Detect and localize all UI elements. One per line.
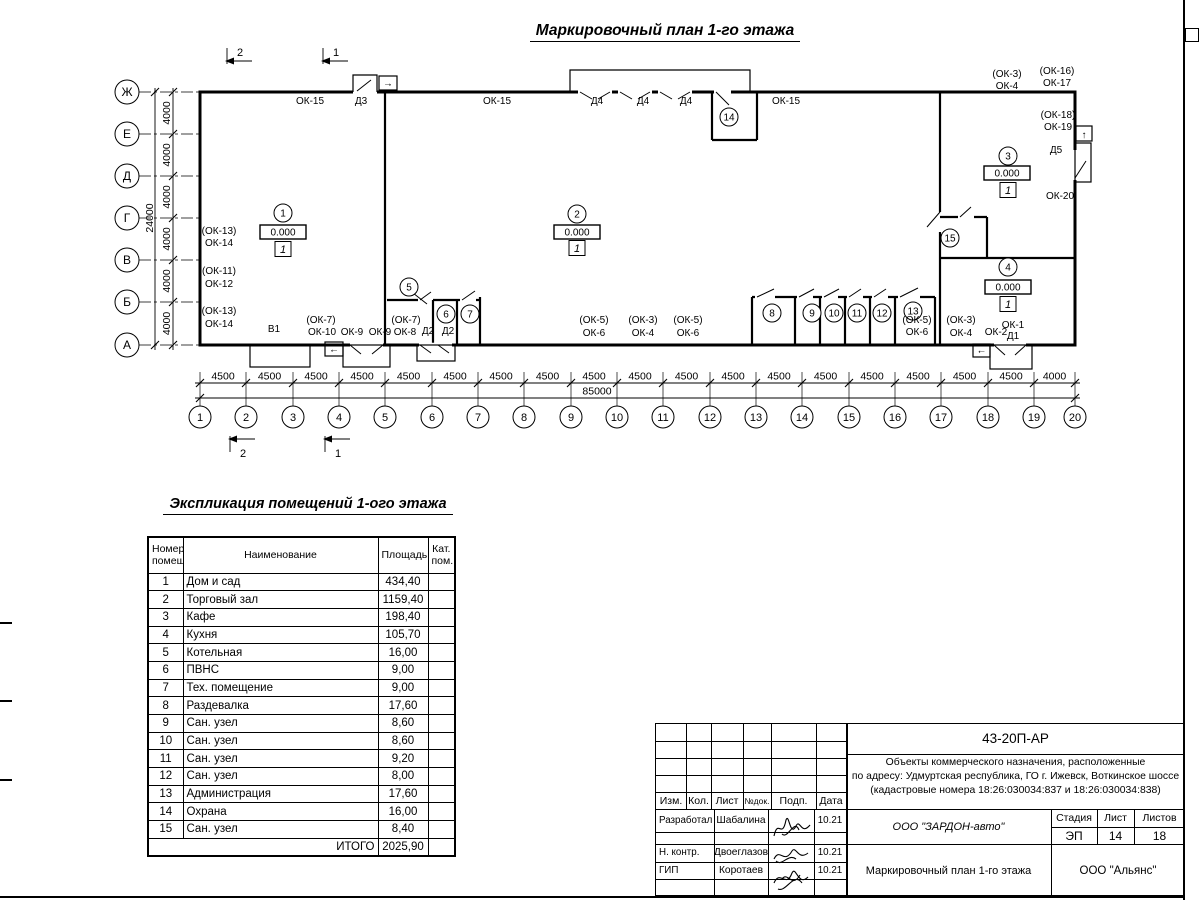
room-area-cell: 105,70 <box>378 626 428 644</box>
window-door-label: ОК-12 <box>205 279 233 290</box>
room-number-cell: 12 <box>148 768 183 786</box>
window-mark <box>199 196 202 199</box>
window-mark <box>523 91 526 94</box>
window-mark <box>779 91 782 94</box>
explication-title: Экспликация помещений 1-ого этажа <box>148 496 468 512</box>
table-row: 10 Сан. узел 8,60 <box>148 732 455 750</box>
room-number-cell: 9 <box>148 715 183 733</box>
level-value: 1 <box>1005 299 1011 311</box>
room-number: 11 <box>852 309 863 320</box>
room-number: 2 <box>574 210 580 221</box>
dim-label: 4500 <box>582 371 606 383</box>
room-category-cell <box>428 768 455 786</box>
axis-number: 12 <box>704 412 716 424</box>
table-row: 6 ПВНС 9,00 <box>148 661 455 679</box>
window-door-label: ОК-4 <box>996 81 1019 92</box>
col-kol: Кол. <box>686 792 711 809</box>
dim-label: 4500 <box>860 371 884 383</box>
fold-mark <box>0 700 12 702</box>
room-name-cell: Сан. узел <box>183 750 378 768</box>
axis-letter: А <box>123 338 131 352</box>
project-description-line: (кадастровые номера 18:26:030034:837 и 1… <box>848 784 1183 798</box>
room-category-cell <box>428 821 455 839</box>
floor-plan-svg: ЖЕДГВБА123456789101112131415161718192012… <box>0 0 1200 470</box>
fold-mark <box>0 779 12 781</box>
signer-name: Коротаев <box>714 862 768 879</box>
col-header-number: Номер помещ. <box>148 537 183 573</box>
frame-corner-box <box>1185 28 1199 42</box>
dim-label: 4500 <box>397 371 421 383</box>
room-category-cell <box>428 750 455 768</box>
window-door-label: (ОК-7) <box>391 315 420 326</box>
table-row: 4 Кухня 105,70 <box>148 626 455 644</box>
room-number: 4 <box>1005 263 1011 274</box>
room-number-cell: 13 <box>148 785 183 803</box>
client-firm: ООО "Альянс" <box>1051 844 1185 897</box>
exit-arrow-icon: ← <box>977 346 987 357</box>
room-area-cell: 1159,40 <box>378 591 428 609</box>
window-mark <box>894 344 897 347</box>
col-header-category: Кат. пом. <box>428 537 455 573</box>
stage-label: Стадия <box>1051 809 1097 827</box>
window-mark <box>477 91 480 94</box>
level-value: 1 <box>1005 185 1011 197</box>
dim-label: 4500 <box>350 371 374 383</box>
axis-number: 6 <box>429 412 435 424</box>
sheets-label: Листов <box>1134 809 1185 827</box>
table-row: 5 Котельная 16,00 <box>148 644 455 662</box>
room-number: 12 <box>876 309 888 320</box>
axis-number: 9 <box>568 412 574 424</box>
col-header-name: Наименование <box>183 537 378 573</box>
window-door-label: ОК-14 <box>205 319 233 330</box>
window-mark <box>292 344 295 347</box>
drawing-title: Маркировочный план 1-го этажа <box>846 844 1051 897</box>
window-door-label: (ОК-7) <box>306 315 335 326</box>
window-door-label: ОК-9 <box>369 327 392 338</box>
axis-letter: Д <box>123 169 131 183</box>
window-door-label: ОК-4 <box>632 328 655 339</box>
room-number: 10 <box>828 309 840 320</box>
room-number: 5 <box>406 283 412 294</box>
room-area-cell: 198,40 <box>378 608 428 626</box>
window-door-label: (ОК-3) <box>628 315 657 326</box>
window-mark <box>199 154 202 157</box>
axis-number: 14 <box>796 412 808 424</box>
window-mark <box>199 322 202 325</box>
room-name-cell: Кафе <box>183 608 378 626</box>
exit-arrow-icon: ↑ <box>1082 130 1087 141</box>
window-door-label: ОК-8 <box>394 327 417 338</box>
doc-number: 43-20П-АР <box>846 724 1185 754</box>
window-mark <box>431 91 434 94</box>
room-number: 7 <box>467 310 473 321</box>
room-name-cell: Охрана <box>183 803 378 821</box>
window-mark <box>662 344 665 347</box>
window-door-label: ОК-6 <box>906 327 929 338</box>
sheet-label: Лист <box>1097 809 1134 827</box>
signer-name: Шабалина <box>714 809 768 832</box>
table-row: 12 Сан. узел 8,00 <box>148 768 455 786</box>
room-number: 9 <box>809 309 815 320</box>
col-podp: Подп. <box>771 792 816 809</box>
room-area-cell: 434,40 <box>378 573 428 591</box>
room-name-cell: Котельная <box>183 644 378 662</box>
room-number: 6 <box>443 310 449 321</box>
room-number-cell: 7 <box>148 679 183 697</box>
window-door-label: ОК-10 <box>308 327 336 338</box>
window-mark <box>825 91 828 94</box>
axis-number: 8 <box>521 412 527 424</box>
window-mark <box>755 344 758 347</box>
room-area-cell: 8,00 <box>378 768 428 786</box>
room-number-cell: 15 <box>148 821 183 839</box>
axis-number: 15 <box>843 412 855 424</box>
room-area-cell: 8,40 <box>378 821 428 839</box>
dim-label: 4500 <box>536 371 560 383</box>
dim-label: 4500 <box>999 371 1023 383</box>
table-row: 1 Дом и сад 434,40 <box>148 573 455 591</box>
room-category-cell <box>428 591 455 609</box>
window-door-label: ОК-6 <box>677 328 700 339</box>
room-number-cell: 8 <box>148 697 183 715</box>
window-door-label: Д4 <box>637 96 650 107</box>
dim-label: 4500 <box>304 371 328 383</box>
section-mark-number: 1 <box>335 448 341 460</box>
room-name-cell: Сан. узел <box>183 732 378 750</box>
window-mark <box>199 238 202 241</box>
elevation-value: 0.000 <box>270 228 295 239</box>
window-door-label: (ОК-3) <box>946 315 975 326</box>
table-row: 13 Администрация 17,60 <box>148 785 455 803</box>
window-mark <box>292 91 295 94</box>
window-door-label: ОК-6 <box>583 328 606 339</box>
axis-number: 17 <box>935 412 947 424</box>
room-category-cell <box>428 697 455 715</box>
dim-label: 4000 <box>161 227 173 251</box>
room-name-cell: Раздевалка <box>183 697 378 715</box>
room-category-cell <box>428 573 455 591</box>
window-mark <box>1033 91 1036 94</box>
table-row: 15 Сан. узел 8,40 <box>148 821 455 839</box>
window-door-label: Д1 <box>1007 331 1020 342</box>
table-row: 8 Раздевалка 17,60 <box>148 697 455 715</box>
room-number-cell: 6 <box>148 661 183 679</box>
room-category-cell <box>428 803 455 821</box>
window-door-label: ОК-4 <box>950 328 973 339</box>
window-door-label: Д2 <box>422 326 435 337</box>
dim-label: 4500 <box>953 371 977 383</box>
exit-arrow-icon: ← <box>329 345 339 356</box>
col-ndok: №док. <box>743 792 771 809</box>
axis-number: 11 <box>657 412 668 424</box>
window-door-label: (ОК-3) <box>992 69 1021 80</box>
room-number: 14 <box>723 113 735 124</box>
window-door-label: Д5 <box>1050 145 1063 156</box>
room-category-cell <box>428 661 455 679</box>
window-door-label: (ОК-16) <box>1040 66 1075 77</box>
room-area-cell: 17,60 <box>378 785 428 803</box>
window-mark <box>848 344 851 347</box>
sheet-frame-bottom <box>0 896 1185 898</box>
axis-letter: В <box>123 253 131 267</box>
section-mark-number: 2 <box>237 47 243 59</box>
room-number: 15 <box>944 234 956 245</box>
room-name-cell: Сан. узел <box>183 821 378 839</box>
window-door-label: (ОК-18) <box>1041 110 1076 121</box>
sheets-value: 18 <box>1134 827 1185 844</box>
interior-walls <box>385 92 1075 345</box>
dim-label: 4500 <box>767 371 791 383</box>
dim-label: 4000 <box>161 143 173 167</box>
dim-label: 4000 <box>161 269 173 293</box>
window-mark <box>801 344 804 347</box>
signer-role: Разработал <box>659 809 714 832</box>
table-row: 2 Торговый зал 1159,40 <box>148 591 455 609</box>
dim-label: 4500 <box>721 371 745 383</box>
window-door-label: (ОК-5) <box>902 315 931 326</box>
window-mark <box>1074 239 1077 242</box>
exit-arrow-icon: → <box>383 79 393 90</box>
table-row: 7 Тех. помещение 9,00 <box>148 679 455 697</box>
room-number: 3 <box>1005 152 1011 163</box>
signer-role: Н. контр. <box>659 844 714 862</box>
room-category-cell <box>428 644 455 662</box>
window-mark <box>940 344 943 347</box>
sheet-value: 14 <box>1097 827 1134 844</box>
window-mark <box>1033 344 1036 347</box>
window-door-label: ОК-15 <box>772 96 800 107</box>
outer-walls <box>200 92 1075 345</box>
room-name-cell: Сан. узел <box>183 715 378 733</box>
axis-number: 18 <box>982 412 994 424</box>
contractor-company: ООО "ЗАРДОН-авто" <box>846 809 1051 844</box>
room-name-cell: Кухня <box>183 626 378 644</box>
room-category-cell <box>428 785 455 803</box>
room-number-cell: 11 <box>148 750 183 768</box>
axis-letter: Г <box>124 211 131 225</box>
window-mark <box>245 91 248 94</box>
room-category-cell <box>428 732 455 750</box>
room-category-cell <box>428 608 455 626</box>
window-door-label: ОК-14 <box>205 238 233 249</box>
level-value: 1 <box>574 243 580 255</box>
axis-number: 20 <box>1069 412 1081 424</box>
window-door-label: ОК-20 <box>1046 191 1074 202</box>
window-mark <box>570 344 573 347</box>
window-door-label: (ОК-13) <box>202 226 237 237</box>
window-mark <box>1074 309 1077 312</box>
total-label: ИТОГО <box>148 838 378 856</box>
room-area-cell: 8,60 <box>378 732 428 750</box>
axis-number: 19 <box>1028 412 1040 424</box>
explication-table: Номер помещ. Наименование Площадь Кат. п… <box>147 536 456 857</box>
room-number-cell: 10 <box>148 732 183 750</box>
window-door-label: ОК-17 <box>1043 78 1071 89</box>
drawing-sheet: Маркировочный план 1-го этажа <box>0 0 1200 900</box>
room-name-cell: Администрация <box>183 785 378 803</box>
window-door-label: (ОК-13) <box>202 306 237 317</box>
elevation-value: 0.000 <box>995 283 1020 294</box>
room-name-cell: Торговый зал <box>183 591 378 609</box>
col-header-area: Площадь <box>378 537 428 573</box>
room-number-cell: 5 <box>148 644 183 662</box>
window-door-label: (ОК-11) <box>202 266 236 277</box>
window-door-label: (ОК-5) <box>579 315 608 326</box>
axis-number: 7 <box>475 412 481 424</box>
room-number: 1 <box>280 209 286 220</box>
axis-number: 4 <box>336 412 342 424</box>
room-number-cell: 3 <box>148 608 183 626</box>
level-value: 1 <box>280 244 286 256</box>
axis-letter: Ж <box>121 85 132 99</box>
dim-label: 4500 <box>814 371 838 383</box>
window-door-label: (ОК-5) <box>673 315 702 326</box>
room-number-cell: 14 <box>148 803 183 821</box>
room-category-cell <box>428 715 455 733</box>
room-number-cell: 1 <box>148 573 183 591</box>
window-mark <box>871 91 874 94</box>
axis-number: 13 <box>750 412 762 424</box>
room-category-cell <box>428 626 455 644</box>
fold-mark <box>0 622 12 624</box>
axis-number: 16 <box>889 412 901 424</box>
elevation-value: 0.000 <box>994 169 1019 180</box>
room-category-cell <box>428 679 455 697</box>
room-name-cell: Сан. узел <box>183 768 378 786</box>
window-door-label: Д2 <box>442 326 455 337</box>
signer-date: 10.21 <box>814 844 846 862</box>
col-list: Лист <box>711 792 743 809</box>
axis-number: 2 <box>243 412 249 424</box>
axis-letter: Б <box>123 295 131 309</box>
dim-label: 4000 <box>161 185 173 209</box>
table-row: 14 Охрана 16,00 <box>148 803 455 821</box>
explication-title-text: Экспликация помещений 1-ого этажа <box>163 496 452 515</box>
dim-label: 4000 <box>161 312 173 336</box>
dim-total-label: 24000 <box>144 203 156 232</box>
window-door-label: ОК-19 <box>1044 122 1072 133</box>
col-izm: Изм. <box>656 792 686 809</box>
window-mark <box>523 344 526 347</box>
room-area-cell: 17,60 <box>378 697 428 715</box>
window-door-label: Д3 <box>355 96 368 107</box>
axis-number: 3 <box>290 412 296 424</box>
signer-role: ГИП <box>659 862 714 879</box>
dim-total-label: 85000 <box>582 386 611 398</box>
window-door-label: ОК-15 <box>483 96 511 107</box>
dim-label: 4000 <box>161 101 173 125</box>
room-name-cell: Дом и сад <box>183 573 378 591</box>
room-area-cell: 16,00 <box>378 644 428 662</box>
signature <box>768 845 814 895</box>
axis-letter: Е <box>123 127 131 141</box>
room-area-cell: 9,20 <box>378 750 428 768</box>
window-mark <box>1074 209 1077 212</box>
window-mark <box>199 112 202 115</box>
room-area-cell: 8,60 <box>378 715 428 733</box>
table-row: 9 Сан. узел 8,60 <box>148 715 455 733</box>
signer-date: 10.21 <box>814 862 846 879</box>
window-door-label: ОК-15 <box>296 96 324 107</box>
window-mark <box>709 344 712 347</box>
dim-label: 4500 <box>211 371 235 383</box>
elevation-value: 0.000 <box>564 228 589 239</box>
axis-number: 5 <box>382 412 388 424</box>
room-number: 8 <box>769 309 775 320</box>
room-area-cell: 9,00 <box>378 661 428 679</box>
window-door-label: В1 <box>268 324 281 335</box>
sheet-frame-right <box>1183 0 1185 900</box>
room-name-cell: Тех. помещение <box>183 679 378 697</box>
section-mark-number: 2 <box>240 448 246 460</box>
dim-label: 4500 <box>675 371 699 383</box>
window-mark <box>477 344 480 347</box>
room-area-cell: 9,00 <box>378 679 428 697</box>
section-mark-number: 1 <box>333 47 339 59</box>
stage-value: ЭП <box>1051 827 1097 844</box>
room-number-cell: 2 <box>148 591 183 609</box>
room-name-cell: ПВНС <box>183 661 378 679</box>
axis-number: 1 <box>197 412 203 424</box>
window-mark <box>987 91 990 94</box>
dim-label: 4500 <box>906 371 930 383</box>
project-description-line: Объекты коммерческого назначения, распол… <box>848 756 1183 770</box>
window-door-label: ОК-2 <box>985 327 1008 338</box>
title-block: 43-20П-АР Объекты коммерческого назначен… <box>655 723 1184 896</box>
window-door-label: Д4 <box>591 96 604 107</box>
project-description-line: по адресу: Удмуртская республика, ГО г. … <box>848 770 1183 784</box>
table-header-row: Номер помещ. Наименование Площадь Кат. п… <box>148 537 455 573</box>
dim-label: 4000 <box>1043 371 1067 383</box>
dim-label: 4500 <box>489 371 513 383</box>
total-value: 2025,90 <box>378 838 428 856</box>
window-door-label: ОК-9 <box>341 327 364 338</box>
axis-number: 10 <box>611 412 623 424</box>
col-data: Дата <box>816 792 846 809</box>
window-mark <box>616 344 619 347</box>
window-mark <box>245 344 248 347</box>
dim-label: 4500 <box>258 371 282 383</box>
window-mark <box>338 91 341 94</box>
total-row: ИТОГО 2025,90 <box>148 838 455 856</box>
table-row: 3 Кафе 198,40 <box>148 608 455 626</box>
table-row: 11 Сан. узел 9,20 <box>148 750 455 768</box>
dim-label: 4500 <box>628 371 652 383</box>
window-door-label: Д4 <box>680 96 693 107</box>
dim-label: 4500 <box>443 371 467 383</box>
signer-date: 10.21 <box>814 809 846 832</box>
signer-name: Двоеглазов <box>714 844 768 862</box>
room-number-cell: 4 <box>148 626 183 644</box>
signature <box>768 810 814 842</box>
room-area-cell: 16,00 <box>378 803 428 821</box>
window-mark <box>199 280 202 283</box>
